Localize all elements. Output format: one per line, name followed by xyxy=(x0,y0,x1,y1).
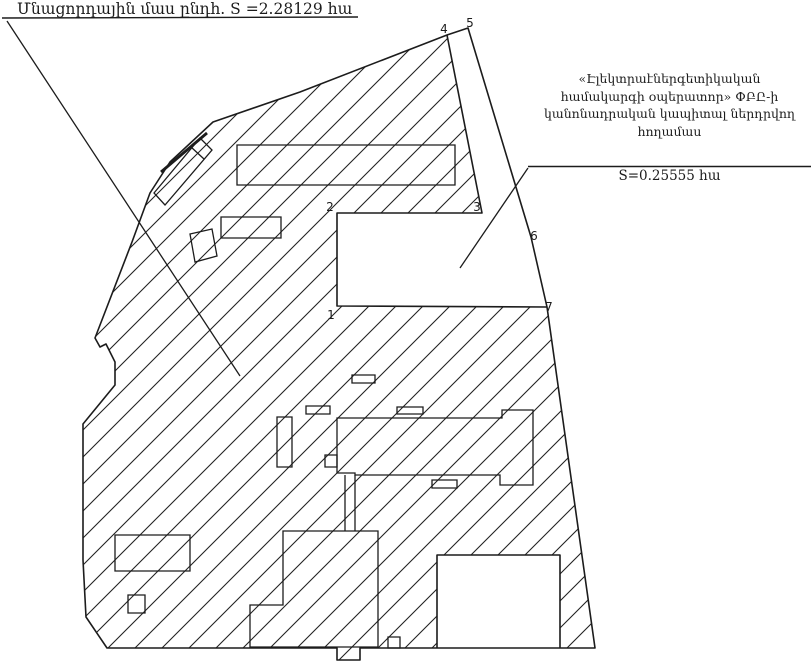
point-label-2: 2 xyxy=(326,200,334,214)
invested-parcel-label-line4: հողամաս xyxy=(528,123,811,141)
residual-area-hatched xyxy=(83,28,595,660)
point-label-1: 1 xyxy=(327,308,335,322)
point-label-5: 5 xyxy=(466,16,474,30)
point-label-6: 6 xyxy=(530,229,538,243)
invested-parcel-label: «Էլեկտրաէներգետիկական համակարգի օպերատոր… xyxy=(528,70,811,140)
invested-parcel-label-line2: համակարգի օպերատոր» ՓԲԸ-ի xyxy=(528,88,811,106)
invested-parcel-label-line1: «Էլեկտրաէներգետիկական xyxy=(528,70,811,88)
point-label-3: 3 xyxy=(473,200,481,214)
invested-parcel-label-line3: կանոնադրական կապիտալ ներդրվող xyxy=(528,105,811,123)
invested-parcel-area: S=0.25555 հա xyxy=(528,168,811,184)
residual-parcel-label: Մնացորդային մաս ընդհ. S =2.28129 հա xyxy=(2,0,358,18)
survey-plan-page: 1 2 3 4 5 6 7 Մնացորդային մաս ընդհ. S =2… xyxy=(0,0,811,670)
point-label-7: 7 xyxy=(545,300,553,314)
point-label-4: 4 xyxy=(440,22,448,36)
